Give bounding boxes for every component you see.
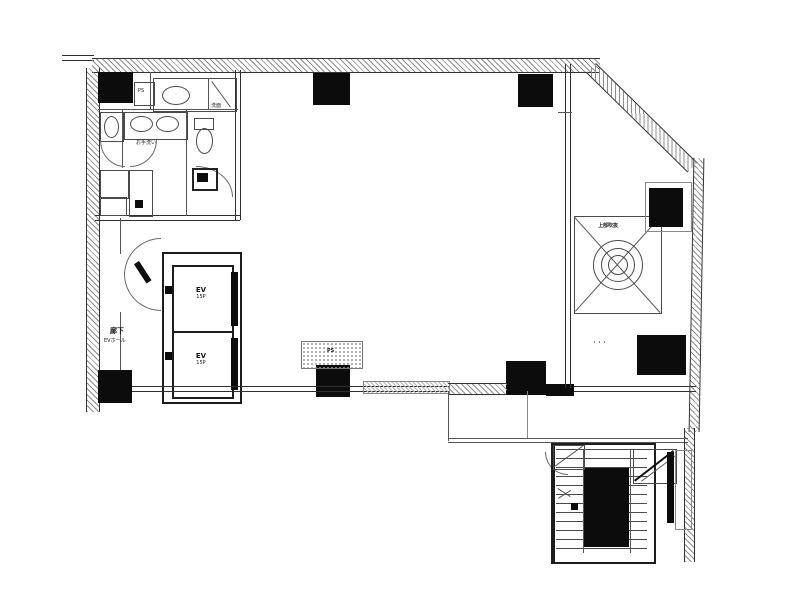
toilet-fixture [162, 86, 190, 105]
column [637, 335, 686, 375]
exterior-wall-chamfer [586, 63, 697, 173]
door-arc [100, 140, 125, 167]
stair-closet [553, 445, 585, 470]
fan-circle-inner [608, 255, 628, 275]
pipe-shaft-box [301, 341, 363, 369]
stair-dot [571, 503, 578, 510]
wall-bottom-right-room [574, 386, 696, 392]
toilet-fixture [104, 116, 119, 138]
column [98, 72, 133, 103]
exterior-wall-top [92, 58, 600, 73]
wall-top-stub [62, 55, 94, 61]
elevator-2-name: EV [172, 352, 230, 360]
shaft-wall-fill [231, 338, 238, 390]
stall-divider [208, 78, 209, 110]
shaft-wall-fill [231, 272, 238, 326]
machine-room-casing [675, 450, 692, 530]
wall-segment [448, 383, 507, 395]
sink-basin [156, 116, 179, 132]
pipe-shaft-label: PS [327, 349, 334, 354]
stair-flight-divider [630, 449, 631, 553]
washbasin-label: 洗面 [211, 104, 221, 109]
corridor-label: 廊下 [110, 328, 124, 335]
window-band [363, 381, 450, 394]
elevator-2-capacity: 15P [172, 360, 230, 366]
floor-plan-canvas: PS お手洗い 洗面 廊下 EVホール EV 15P EV 15P [0, 0, 787, 609]
pipe-shaft-label: PS [138, 89, 144, 94]
toilet-fixture [196, 128, 213, 154]
corridor-sublabel: EVホール [104, 339, 126, 344]
extension-outline [527, 391, 528, 438]
door-jamb [165, 352, 172, 360]
column [316, 365, 350, 397]
utility-box [100, 197, 127, 216]
slop-sink-fill [197, 173, 208, 182]
column [313, 73, 350, 105]
column [506, 361, 546, 395]
partition-tick [558, 112, 572, 113]
elevator-1-name: EV [172, 286, 230, 294]
corridor-wall [120, 218, 121, 254]
extension-outline [448, 391, 449, 441]
machine-room-wall [667, 452, 674, 523]
door-arc [124, 274, 161, 311]
elevator-1-capacity: 15P [172, 294, 230, 300]
annotation-dots: ・・・ [592, 341, 607, 346]
utility-box [100, 170, 129, 199]
sink-basin [130, 116, 153, 132]
exterior-wall-left [86, 68, 100, 412]
elevator-2-label: EV 15P [172, 352, 230, 366]
skylight-label: 上部吹抜 [598, 224, 618, 229]
elevator-1-label: EV 15P [172, 286, 230, 300]
stair-core-wall [584, 468, 629, 547]
door-arc [130, 140, 157, 167]
door-jamb [165, 286, 172, 294]
column [518, 74, 553, 107]
column [649, 188, 683, 227]
utility-closet [129, 170, 153, 217]
column [98, 370, 132, 403]
utility-fill [135, 200, 143, 208]
